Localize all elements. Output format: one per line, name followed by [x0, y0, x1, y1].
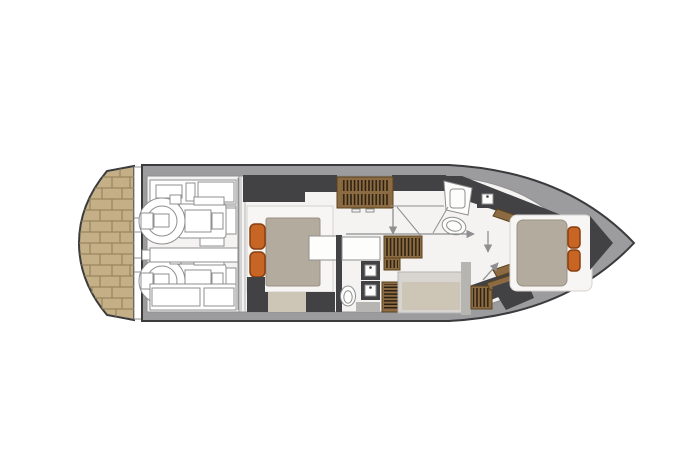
yacht-floor-plan: [0, 0, 697, 463]
sink-unit-1: [361, 261, 380, 280]
master-bench: [268, 292, 306, 312]
sink-forward: [477, 190, 498, 208]
vip-mattress: [517, 220, 567, 286]
master-cushion-2: [250, 252, 265, 277]
vip-cushion-2: [568, 250, 580, 271]
yacht-floorplan-page: [0, 0, 697, 463]
transom-strip: [134, 167, 142, 319]
toilet-mid: [341, 286, 356, 306]
sink-unit-2: [361, 281, 380, 300]
stair-treads-row1: [341, 180, 389, 191]
master-nightstand: [309, 236, 338, 260]
master-wardrobe: [243, 175, 305, 202]
engine-room-bottom-machinery: [150, 284, 236, 310]
vip-cushion-1: [568, 227, 580, 248]
transom: [134, 167, 142, 319]
galley-top-wall: [392, 175, 446, 191]
stair-treads-row2: [341, 194, 389, 205]
guest-berth: [402, 282, 460, 310]
salon-staircase: [337, 177, 393, 212]
berth-side-wall: [461, 262, 471, 315]
vanity-counter: [342, 237, 380, 260]
keel-shaft: [142, 248, 238, 262]
master-cushion-1: [250, 224, 265, 249]
stair-treads: [386, 238, 420, 256]
